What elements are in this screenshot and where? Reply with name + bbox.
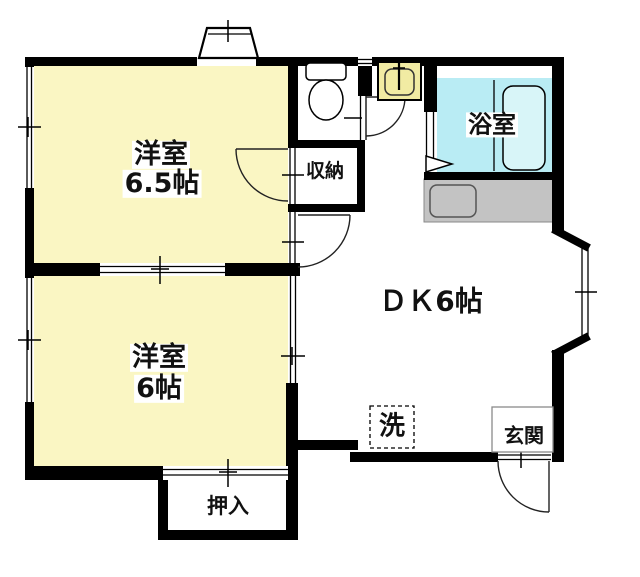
vent-window bbox=[358, 57, 372, 66]
washbasin-icon bbox=[378, 62, 421, 100]
western-room-2-size: 6帖 bbox=[134, 375, 184, 403]
western-room-1-size: 6.5帖 bbox=[123, 170, 202, 198]
top-bay-window bbox=[199, 20, 258, 58]
bathroom-label: 浴室 bbox=[466, 112, 518, 137]
kitchen-counter bbox=[424, 179, 553, 222]
toilet-doorway bbox=[344, 96, 372, 140]
entrance-door-arc bbox=[498, 461, 549, 512]
room1-door-arc bbox=[298, 215, 350, 267]
western-room-1-name: 洋室 bbox=[132, 141, 190, 169]
closet-label: 押入 bbox=[205, 495, 251, 517]
dk-label: ＤＫ6帖 bbox=[377, 286, 484, 315]
toilet-icon bbox=[306, 63, 346, 120]
entrance-label: 玄関 bbox=[502, 426, 546, 447]
laundry-label: 洗 bbox=[377, 413, 407, 440]
floor-plan-drawing bbox=[0, 0, 640, 577]
bay-window-top-diagonal bbox=[553, 229, 589, 248]
bay-window bbox=[575, 247, 597, 337]
floor-plan: 洋室 6.5帖 洋室 6帖 ＤＫ6帖 浴室 収納 押入 玄関 洗 bbox=[0, 0, 640, 577]
bathroom-ledge bbox=[437, 66, 552, 78]
storage-label: 収納 bbox=[304, 162, 346, 182]
western-room-2-name: 洋室 bbox=[130, 344, 188, 372]
